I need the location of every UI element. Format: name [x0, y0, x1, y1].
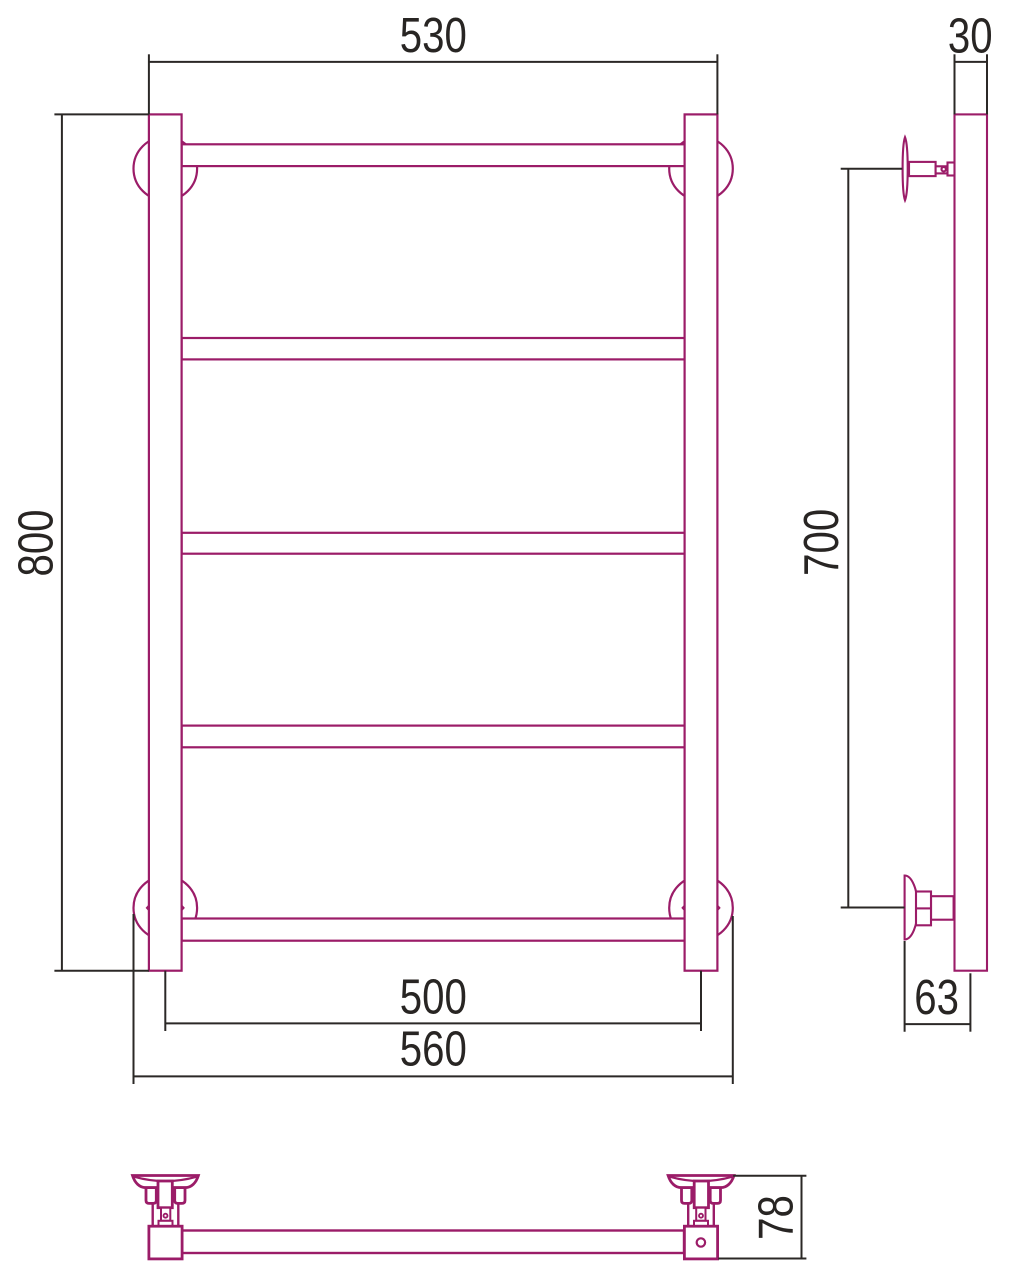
svg-text:700: 700 — [794, 509, 849, 576]
svg-text:800: 800 — [9, 509, 64, 576]
svg-text:78: 78 — [749, 1195, 804, 1240]
svg-text:560: 560 — [400, 1022, 467, 1077]
svg-text:30: 30 — [948, 9, 993, 64]
svg-text:63: 63 — [914, 970, 959, 1025]
svg-text:500: 500 — [400, 970, 467, 1025]
svg-text:530: 530 — [400, 8, 467, 63]
